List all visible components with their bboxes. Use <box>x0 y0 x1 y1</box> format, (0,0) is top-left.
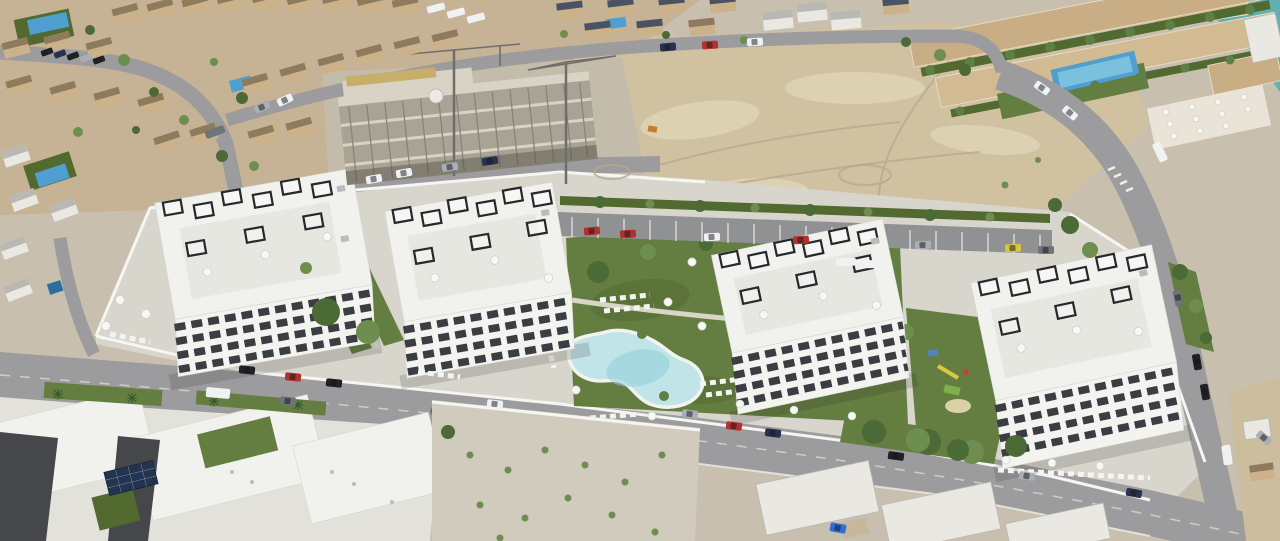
pergola <box>1037 266 1057 282</box>
pergola <box>422 210 442 226</box>
tree <box>694 200 706 212</box>
aerial-scene <box>0 0 1280 541</box>
ac-unit <box>230 470 234 474</box>
tree <box>947 439 969 461</box>
shrub <box>467 452 474 459</box>
house <box>688 18 716 37</box>
tree <box>118 54 130 66</box>
tree <box>1172 264 1188 280</box>
parasol <box>688 258 696 266</box>
palm-tree <box>127 393 138 404</box>
parked-van <box>836 257 856 266</box>
pergola <box>163 200 183 216</box>
palm-tree <box>925 65 935 75</box>
parked-car <box>704 233 720 242</box>
pergola <box>414 248 434 264</box>
house-dark-roof <box>636 19 664 38</box>
house-white <box>796 1 828 22</box>
shrub <box>1035 157 1041 163</box>
car <box>660 42 677 51</box>
shrub <box>582 462 589 469</box>
tree <box>986 213 995 222</box>
palm-tree <box>1125 27 1135 37</box>
tree <box>862 420 886 444</box>
tree <box>646 200 655 209</box>
pergola <box>470 234 490 250</box>
pergola <box>281 179 301 195</box>
pergola <box>1096 254 1116 270</box>
tree <box>179 115 189 125</box>
pergola <box>186 240 206 256</box>
parasol <box>142 310 151 319</box>
parasol <box>1002 456 1010 464</box>
palm-tree <box>1001 98 1010 107</box>
parasol <box>1189 104 1195 110</box>
palm-tree <box>1205 12 1215 22</box>
pergola <box>312 181 332 197</box>
parasol <box>1163 109 1169 115</box>
parasol <box>1223 123 1229 129</box>
tree <box>132 126 140 134</box>
parked-car <box>584 226 601 235</box>
parked-car <box>915 241 931 250</box>
pergola <box>303 213 323 229</box>
house-dark-roof <box>584 20 612 39</box>
tree <box>804 204 816 216</box>
parked-car <box>620 229 637 238</box>
pergola <box>527 220 547 236</box>
parasol <box>1193 116 1199 122</box>
tree <box>210 58 218 66</box>
pergola <box>245 227 265 243</box>
pergola <box>829 228 849 244</box>
parasol <box>848 412 856 420</box>
parasol <box>102 322 111 331</box>
pergola <box>532 191 552 207</box>
palm-tree <box>1245 5 1255 15</box>
parasol <box>1048 459 1056 467</box>
palm-tree <box>956 107 965 116</box>
parasol <box>1171 133 1177 139</box>
tree <box>312 298 340 326</box>
tree <box>587 261 609 283</box>
parasol <box>1245 106 1251 112</box>
shrub <box>622 479 629 486</box>
tree <box>901 37 911 47</box>
pergola <box>1010 279 1030 295</box>
shrub <box>477 502 484 509</box>
sand-patch <box>785 72 925 104</box>
parasol <box>736 400 744 408</box>
palm-tree <box>637 329 647 339</box>
van <box>206 387 231 399</box>
tree <box>906 428 930 452</box>
tree <box>864 208 873 217</box>
parked-car <box>1038 246 1054 254</box>
tree <box>236 92 248 104</box>
tree <box>594 196 606 208</box>
tree <box>85 25 95 35</box>
pergola <box>222 189 242 205</box>
parked-car <box>285 372 302 382</box>
pergola <box>253 192 273 208</box>
house <box>1249 462 1275 481</box>
tree <box>300 262 312 274</box>
tree <box>1189 299 1203 313</box>
parasol <box>116 296 125 305</box>
parasol <box>664 298 672 306</box>
shrub <box>609 512 616 519</box>
ac-unit <box>390 500 394 504</box>
tree <box>1200 332 1212 344</box>
parasol <box>1167 121 1173 127</box>
parasol <box>1215 99 1221 105</box>
tree <box>356 320 380 344</box>
tree <box>149 87 159 97</box>
parked-van <box>866 260 886 269</box>
pergola <box>503 188 523 204</box>
pergola <box>748 252 768 268</box>
pergola <box>999 318 1019 334</box>
shrub <box>1002 182 1009 189</box>
shrub <box>542 447 549 454</box>
palm-tree <box>1005 50 1015 60</box>
tree <box>740 36 748 44</box>
tree <box>560 30 568 38</box>
aerial-photo <box>0 0 1280 541</box>
house-white <box>762 9 794 30</box>
tree <box>1061 216 1079 234</box>
tree <box>1048 198 1062 212</box>
shrub <box>659 452 666 459</box>
palm-tree <box>1091 81 1100 90</box>
palm-tree <box>1226 56 1235 65</box>
parasol <box>572 386 580 394</box>
parasol <box>698 322 706 330</box>
parked-car <box>239 365 256 375</box>
tree <box>249 161 259 171</box>
parasol <box>1219 111 1225 117</box>
palm-tree <box>1085 35 1095 45</box>
tree <box>640 244 656 260</box>
pergola <box>448 197 468 213</box>
car <box>280 396 297 406</box>
pergola <box>796 271 816 287</box>
palm-tree <box>1136 73 1145 82</box>
tree <box>1005 435 1027 457</box>
shrub <box>652 529 659 536</box>
palm-tree <box>659 391 669 401</box>
parasol <box>648 412 656 420</box>
house-white <box>830 10 861 31</box>
ac-unit <box>250 480 254 484</box>
palm-tree <box>1165 20 1175 30</box>
shrub <box>505 467 512 474</box>
ac-unit <box>330 470 334 474</box>
palm-tree <box>53 389 64 400</box>
tree <box>959 64 971 76</box>
parasol <box>1096 462 1104 470</box>
pergola <box>740 287 760 303</box>
tree <box>73 127 83 137</box>
shrub <box>522 515 529 522</box>
house-dark-roof <box>882 0 909 15</box>
play-structure-red <box>963 369 969 375</box>
pergola <box>194 202 214 218</box>
house-dark-roof <box>556 0 584 19</box>
tree <box>924 209 936 221</box>
palm-tree <box>1045 42 1055 52</box>
tree <box>751 204 760 213</box>
pergola <box>1111 286 1131 302</box>
ac-unit <box>352 482 356 486</box>
palm-tree <box>1181 64 1190 73</box>
playground-sand <box>945 399 971 413</box>
shrub <box>565 495 572 502</box>
tree <box>216 150 228 162</box>
pergola <box>979 279 999 295</box>
pergola <box>719 251 739 267</box>
pergola <box>393 207 413 223</box>
car <box>702 40 719 49</box>
parked-car <box>1005 244 1021 253</box>
tree <box>441 425 455 439</box>
parasol <box>1241 94 1247 100</box>
tree <box>662 31 670 39</box>
parasol <box>1197 128 1203 134</box>
pergola <box>774 239 794 255</box>
parasol <box>790 406 798 414</box>
car <box>747 37 764 46</box>
parked-car <box>326 378 343 388</box>
pergola <box>1055 302 1075 318</box>
tree <box>1082 242 1098 258</box>
pergola <box>1127 254 1147 270</box>
pergola <box>477 200 497 216</box>
parked-car <box>793 236 809 245</box>
tree <box>934 49 946 61</box>
pergola <box>1068 267 1088 283</box>
cement-silo <box>429 89 443 103</box>
